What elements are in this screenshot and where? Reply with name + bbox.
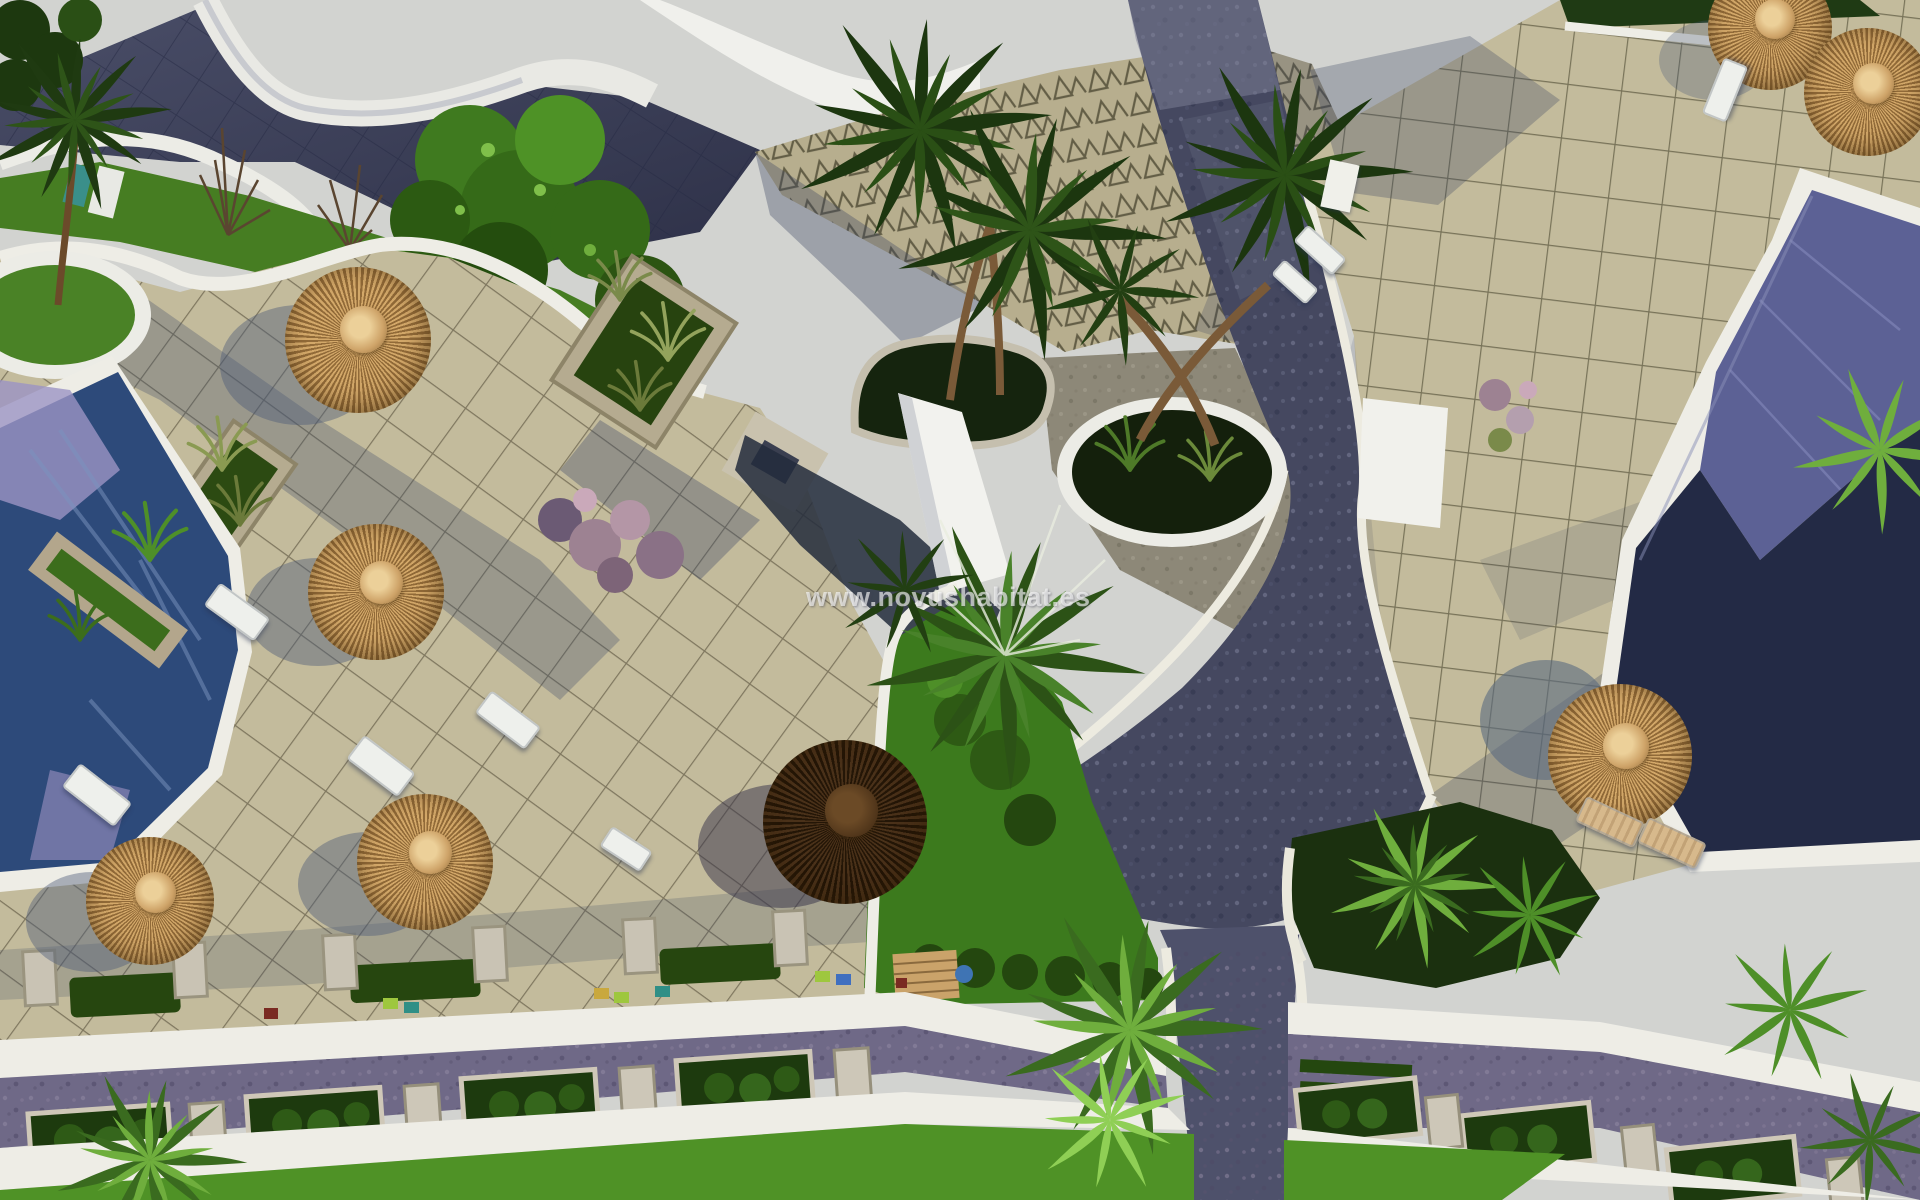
maroon-pot	[896, 978, 907, 988]
blue-pot	[955, 965, 973, 983]
thatch-umbrella	[86, 837, 214, 965]
thatch-umbrella-dark	[763, 740, 927, 904]
white-slab-structure	[1358, 398, 1448, 528]
umbrella-crown	[340, 306, 387, 353]
umbrella-crown	[1755, 0, 1795, 39]
thatch-umbrella	[357, 794, 493, 930]
umbrella-crown	[1853, 63, 1894, 104]
thatch-umbrella	[1804, 28, 1920, 156]
thatch-umbrella	[308, 524, 444, 660]
thatch-umbrella	[1548, 684, 1692, 828]
umbrella-crown	[825, 784, 877, 836]
umbrella-crown	[409, 831, 453, 875]
aerial-resort-render: www.novushabitat.es	[0, 0, 1920, 1200]
watermark-text: www.novushabitat.es	[806, 582, 1116, 613]
thatch-umbrella	[285, 267, 431, 413]
umbrella-crown	[360, 561, 404, 605]
umbrella-crown	[1603, 723, 1649, 769]
umbrella-crown	[135, 872, 176, 913]
